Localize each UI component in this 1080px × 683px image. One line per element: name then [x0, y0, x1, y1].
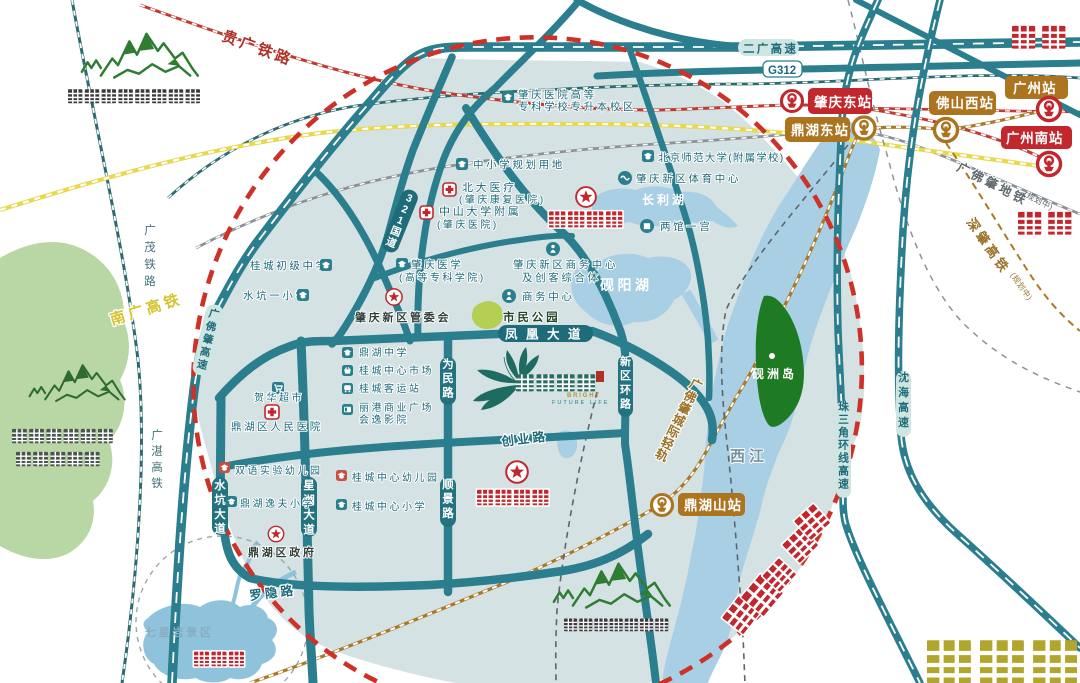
svg-text:鼎湖山站: 鼎湖山站	[684, 497, 742, 513]
svg-text:角: 角	[838, 425, 849, 439]
svg-text:鼎湖中学: 鼎湖中学	[359, 346, 409, 359]
svg-text:珠: 珠	[838, 399, 849, 413]
svg-text:广州站: 广州站	[1013, 80, 1057, 96]
svg-text:G312: G312	[768, 65, 796, 77]
svg-text:砚阳湖: 砚阳湖	[600, 277, 653, 293]
svg-text:广州南站: 广州南站	[1006, 130, 1063, 146]
svg-text:七星岩景区: 七星岩景区	[145, 625, 214, 639]
svg-text:二广高速: 二广高速	[743, 42, 798, 56]
svg-text:环: 环	[620, 383, 631, 396]
svg-text:鼎湖区政府: 鼎湖区政府	[248, 545, 317, 559]
svg-text:长利湖: 长利湖	[642, 192, 687, 207]
svg-text:民: 民	[442, 372, 454, 385]
svg-text:北大医疗: 北大医疗	[462, 180, 517, 194]
svg-text:肇庆新区商务中心: 肇庆新区商务中心	[513, 258, 618, 271]
svg-text:湛: 湛	[151, 445, 163, 458]
svg-text:新: 新	[620, 354, 631, 368]
svg-text:区: 区	[620, 369, 631, 382]
svg-text:鼎湖区人民医院: 鼎湖区人民医院	[231, 420, 323, 433]
svg-text:双语实验幼儿园: 双语实验幼儿园	[235, 464, 323, 477]
svg-text:景: 景	[441, 493, 454, 506]
svg-text:会逸影院: 会逸影院	[359, 413, 409, 426]
svg-text:道: 道	[214, 522, 226, 536]
svg-text:高: 高	[898, 400, 909, 414]
svg-text:西江: 西江	[730, 447, 768, 465]
svg-text:肇庆东站: 肇庆东站	[814, 94, 872, 110]
svg-text:路: 路	[442, 385, 454, 399]
svg-text:大: 大	[214, 507, 226, 521]
svg-text:肇庆医学: 肇庆医学	[411, 258, 463, 271]
svg-text:路: 路	[620, 397, 632, 411]
svg-text:及创客综合体: 及创客综合体	[522, 271, 601, 284]
svg-text:线: 线	[838, 451, 849, 465]
svg-text:桂城客运站: 桂城客运站	[359, 382, 422, 395]
svg-text:路: 路	[144, 274, 156, 288]
svg-text:高: 高	[838, 464, 849, 478]
svg-text:北京师范大学(附属学校): 北京师范大学(附属学校)	[658, 151, 784, 164]
svg-text:鼎湖东站: 鼎湖东站	[791, 122, 849, 138]
svg-text:市民公园: 市民公园	[503, 310, 561, 324]
svg-text:顺: 顺	[442, 477, 454, 491]
svg-text:中小学规划用地: 中小学规划用地	[473, 158, 565, 171]
svg-text:广: 广	[151, 429, 163, 442]
svg-text:海: 海	[898, 385, 909, 399]
svg-text:凤凰大道: 凤凰大道	[505, 327, 589, 342]
svg-text:商务中心: 商务中心	[522, 290, 574, 303]
svg-text:桂城初级中学: 桂城初级中学	[250, 259, 329, 272]
svg-text:为: 为	[442, 357, 454, 371]
svg-text:坑: 坑	[214, 493, 226, 507]
svg-text:两馆一宫: 两馆一宫	[660, 220, 712, 233]
svg-text:FUTURE LIFE: FUTURE LIFE	[552, 400, 609, 406]
svg-text:水: 水	[214, 478, 226, 492]
svg-text:速: 速	[898, 415, 909, 429]
svg-text:肇庆新区管委会: 肇庆新区管委会	[354, 310, 451, 324]
svg-text:丽港商业广场: 丽港商业广场	[359, 401, 434, 414]
svg-text:桂城中心市场: 桂城中心市场	[359, 364, 434, 377]
svg-text:铁: 铁	[151, 477, 163, 490]
svg-text:广: 广	[144, 224, 156, 237]
svg-text:佛山西站: 佛山西站	[935, 95, 994, 111]
svg-text:环: 环	[838, 439, 849, 452]
svg-text:桂城中心小学: 桂城中心小学	[352, 500, 427, 513]
svg-text:砚洲岛: 砚洲岛	[752, 366, 797, 381]
svg-text:三: 三	[838, 413, 849, 426]
svg-text:(肇庆康复医院): (肇庆康复医院)	[459, 193, 546, 206]
svg-text:星: 星	[303, 479, 315, 492]
svg-text:速: 速	[838, 476, 849, 490]
svg-text:茂: 茂	[144, 240, 156, 254]
svg-text:(高等专科学院): (高等专科学院)	[399, 271, 486, 284]
svg-text:中山大学附属: 中山大学附属	[439, 204, 522, 218]
svg-text:沈: 沈	[898, 370, 909, 384]
svg-text:肇庆医院高等: 肇庆医院高等	[518, 88, 597, 101]
svg-text:鼎湖逸夫小学: 鼎湖逸夫小学	[240, 497, 315, 510]
svg-text:桂城中心幼儿园: 桂城中心幼儿园	[352, 471, 440, 484]
svg-text:(肇庆医院): (肇庆医院)	[437, 218, 499, 231]
svg-text:道: 道	[303, 522, 315, 536]
svg-text:专科学校专升本校区: 专科学校专升本校区	[518, 100, 636, 113]
svg-text:BRIGHT: BRIGHT	[567, 393, 601, 399]
svg-text:肇庆新区体育中心: 肇庆新区体育中心	[636, 172, 741, 185]
svg-text:路: 路	[442, 506, 454, 520]
svg-text:高: 高	[151, 460, 163, 474]
svg-text:贺华超市: 贺华超市	[254, 391, 304, 404]
svg-text:铁: 铁	[144, 258, 156, 271]
